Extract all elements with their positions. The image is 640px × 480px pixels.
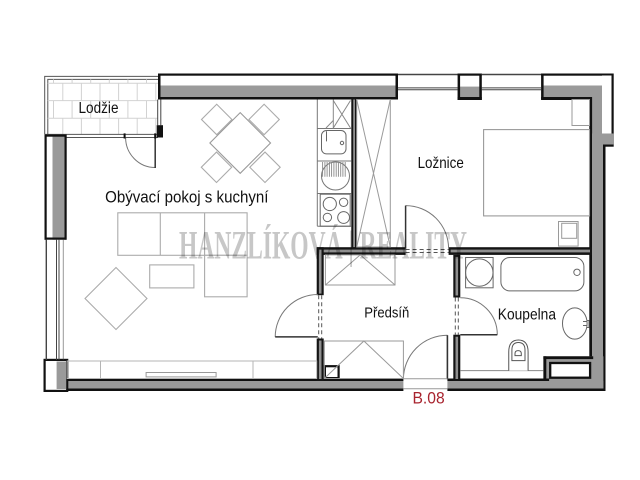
svg-text:B.08: B.08 (413, 390, 445, 408)
svg-text:Ložnice: Ložnice (418, 155, 464, 172)
svg-text:Předsíň: Předsíň (364, 304, 409, 321)
svg-text:Lodžie: Lodžie (79, 100, 119, 117)
svg-text:Obývací pokoj s kuchyní: Obývací pokoj s kuchyní (105, 189, 269, 207)
svg-text:HANZLÍKOVÁ | REALITY: HANZLÍKOVÁ | REALITY (179, 223, 467, 268)
svg-text:Koupelna: Koupelna (498, 306, 556, 323)
